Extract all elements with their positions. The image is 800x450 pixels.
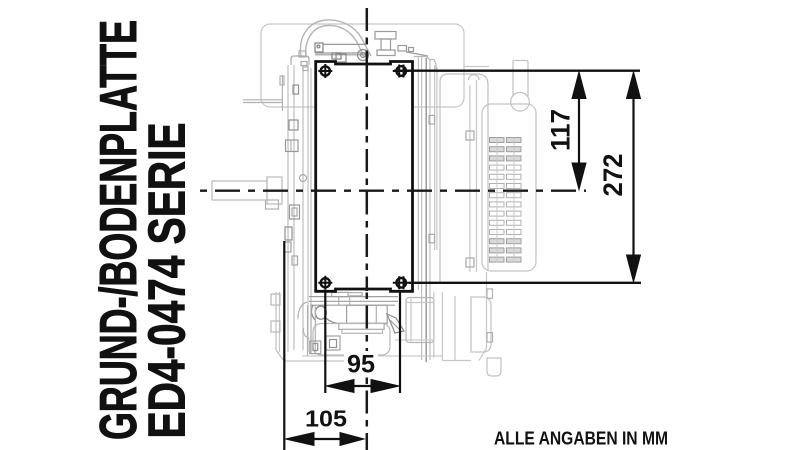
svg-text:ED4-0474 SERIE: ED4-0474 SERIE <box>139 123 197 439</box>
svg-text:105: 105 <box>305 406 347 432</box>
svg-text:117: 117 <box>546 109 576 151</box>
svg-text:ALLE ANGABEN IN MM: ALLE ANGABEN IN MM <box>494 429 668 449</box>
svg-text:272: 272 <box>598 154 628 197</box>
svg-text:95: 95 <box>347 351 375 379</box>
